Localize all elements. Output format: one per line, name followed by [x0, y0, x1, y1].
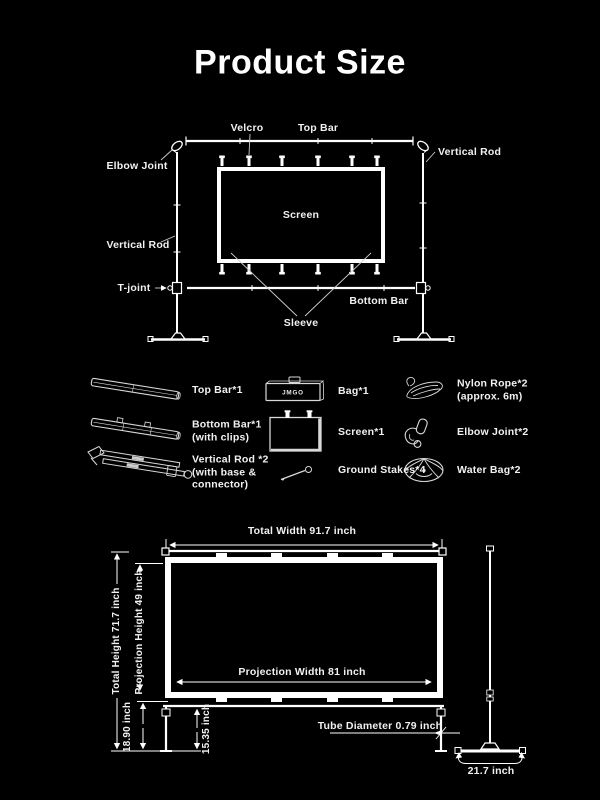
- top-bar-label: Top Bar: [298, 122, 338, 135]
- assembly-top-bar: [186, 137, 413, 146]
- vertical-rod-left-art: [174, 152, 181, 338]
- elbow-joint-label: Elbow Joint: [106, 160, 167, 173]
- t-joint-right-icon: [417, 283, 431, 294]
- screen-part-icon: [270, 410, 321, 451]
- vertical-rod-right-art: [420, 153, 427, 338]
- elbow-joint-right-icon: [416, 139, 430, 152]
- projection-width-label: Projection Width 81 inch: [238, 666, 365, 679]
- part-label-screen: Screen*1: [338, 426, 385, 439]
- part-label-ground-stakes: Ground Stakes*4: [338, 464, 426, 477]
- stand-lower-height-label: 18.90 inch: [122, 702, 135, 752]
- nylon-rope-part-icon: [407, 377, 443, 398]
- screen-label: Screen: [283, 209, 319, 222]
- vertical-rod-left-label: Vertical Rod: [106, 239, 169, 252]
- assembly-bottom-bar: [187, 285, 415, 291]
- total-width-label: Total Width 91.7 inch: [248, 525, 356, 538]
- bag-part-icon: JMGO: [266, 377, 324, 401]
- t-joint-left-icon: [168, 283, 182, 294]
- elbow-joint-part-icon: [405, 418, 428, 447]
- t-joint-label: T-joint: [118, 282, 151, 295]
- base-width-label: 21.7 inch: [468, 765, 515, 778]
- elbow-joint-left-icon: [170, 139, 184, 152]
- foot-right: [394, 333, 454, 342]
- bottom-bar-part-icon: [91, 414, 181, 440]
- bag-brand-text: JMGO: [282, 390, 304, 397]
- part-label-nylon-rope: Nylon Rope*2 (approx. 6m): [457, 378, 528, 403]
- base-width-dim: [456, 752, 526, 764]
- product-size-infographic: JMGO: [0, 0, 600, 800]
- top-bar-part-icon: [91, 378, 181, 399]
- projection-height-label: Projection Height 49 inch: [134, 569, 147, 694]
- total-height-label: Total Height 71.7 inch: [111, 587, 124, 694]
- foot-left: [148, 333, 208, 342]
- part-label-water-bag: Water Bag*2: [457, 464, 521, 477]
- part-label-bottom-bar: Bottom Bar*1 (with clips): [192, 419, 262, 444]
- tube-diameter-label: Tube Diameter 0.79 inch: [318, 720, 443, 733]
- part-label-vertical-rod: Vertical Rod *2 (with base & connector): [192, 453, 269, 491]
- page-title: Product Size: [194, 44, 406, 83]
- sleeve-label: Sleeve: [284, 317, 318, 330]
- vertical-rod-part-icon: [88, 447, 193, 480]
- bottom-bar-label: Bottom Bar: [349, 295, 408, 308]
- part-label-bag: Bag*1: [338, 385, 369, 398]
- part-label-elbow-joint: Elbow Joint*2: [457, 426, 528, 439]
- velcro-label: Velcro: [231, 122, 264, 135]
- total-width-dim: [166, 539, 442, 551]
- side-view-stand: [455, 546, 526, 754]
- leg-height-label: 15.35 inch: [201, 704, 214, 754]
- part-label-top-bar: Top Bar*1: [192, 384, 243, 397]
- vertical-rod-right-label: Vertical Rod: [438, 146, 501, 159]
- ground-stake-part-icon: [281, 467, 312, 481]
- assembly-diagram: [148, 134, 454, 342]
